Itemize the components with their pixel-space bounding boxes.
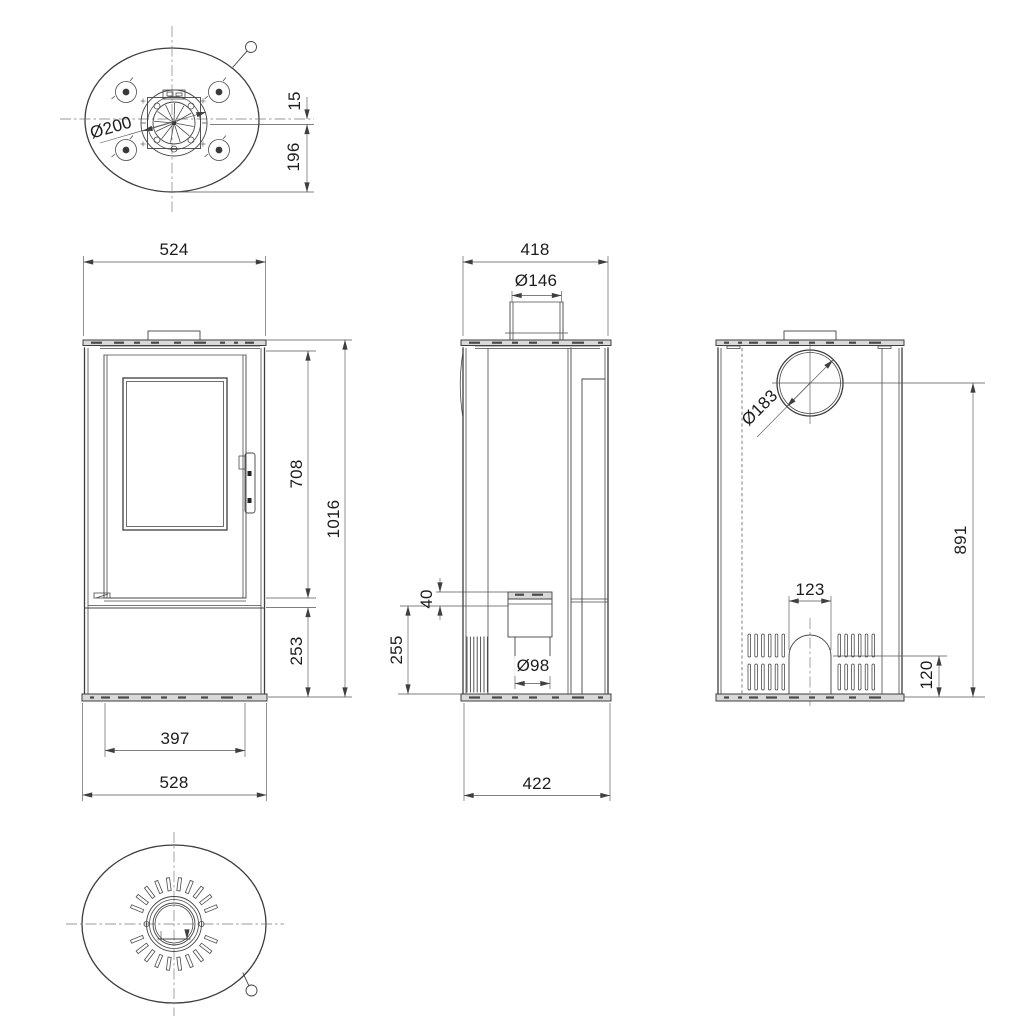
dim-side-top-depth: 418: [521, 240, 550, 260]
dim-side-intake-pipe: Ø98: [515, 656, 552, 676]
top-dimensions: [100, 97, 314, 192]
dim-front-pedestal-width: 397: [161, 729, 190, 749]
side-view: [398, 256, 611, 801]
back-vent-slots: [748, 634, 875, 690]
bottom-view: [66, 832, 284, 1016]
top-handle: [233, 42, 257, 68]
dim-front-body-height: 708: [287, 460, 307, 489]
front-view: [82, 256, 352, 801]
dim-front-base-height: 253: [287, 637, 307, 666]
side-vent-grille: [467, 637, 487, 692]
flue-collar-front: [148, 331, 200, 340]
ash-door-latch[interactable]: [94, 593, 110, 598]
base-arch-opening: [789, 618, 831, 706]
dim-side-base-depth: 422: [523, 774, 552, 794]
dim-front-base-width: 528: [160, 773, 189, 793]
body-outline: [85, 348, 265, 694]
flue-collar-back: [784, 331, 836, 340]
dim-back-arch-height: 120: [917, 661, 937, 690]
drawing-linework: [0, 0, 1024, 1024]
flue-outlet: [757, 344, 985, 437]
dim-top-flue-to-rear: 196: [284, 143, 304, 172]
dim-front-top-width: 524: [160, 240, 189, 260]
door-window: [123, 378, 227, 530]
heat-shield: [582, 379, 605, 694]
dim-back-flue-height: 891: [951, 526, 971, 555]
dim-side-intake-drop: 40: [417, 589, 437, 608]
dim-front-total-height: 1016: [324, 500, 344, 539]
side-dimensions: [398, 578, 610, 801]
back-view: [716, 331, 985, 706]
dim-back-arch-width: 123: [796, 580, 825, 600]
top-view: [60, 26, 314, 212]
technical-drawing-canvas: Ø200 15 196 524 708 1016 253 397 528 418…: [0, 0, 1024, 1024]
bottom-handle: [243, 973, 257, 996]
door[interactable]: [104, 355, 255, 598]
flue-collar: [141, 90, 207, 156]
flue-pipe-side: [505, 291, 568, 340]
dim-top-flue-offset: 15: [285, 91, 305, 110]
door-handle[interactable]: [239, 453, 255, 513]
dim-side-intake-height: 255: [387, 636, 407, 665]
dim-side-flue-pipe: Ø146: [515, 271, 557, 291]
